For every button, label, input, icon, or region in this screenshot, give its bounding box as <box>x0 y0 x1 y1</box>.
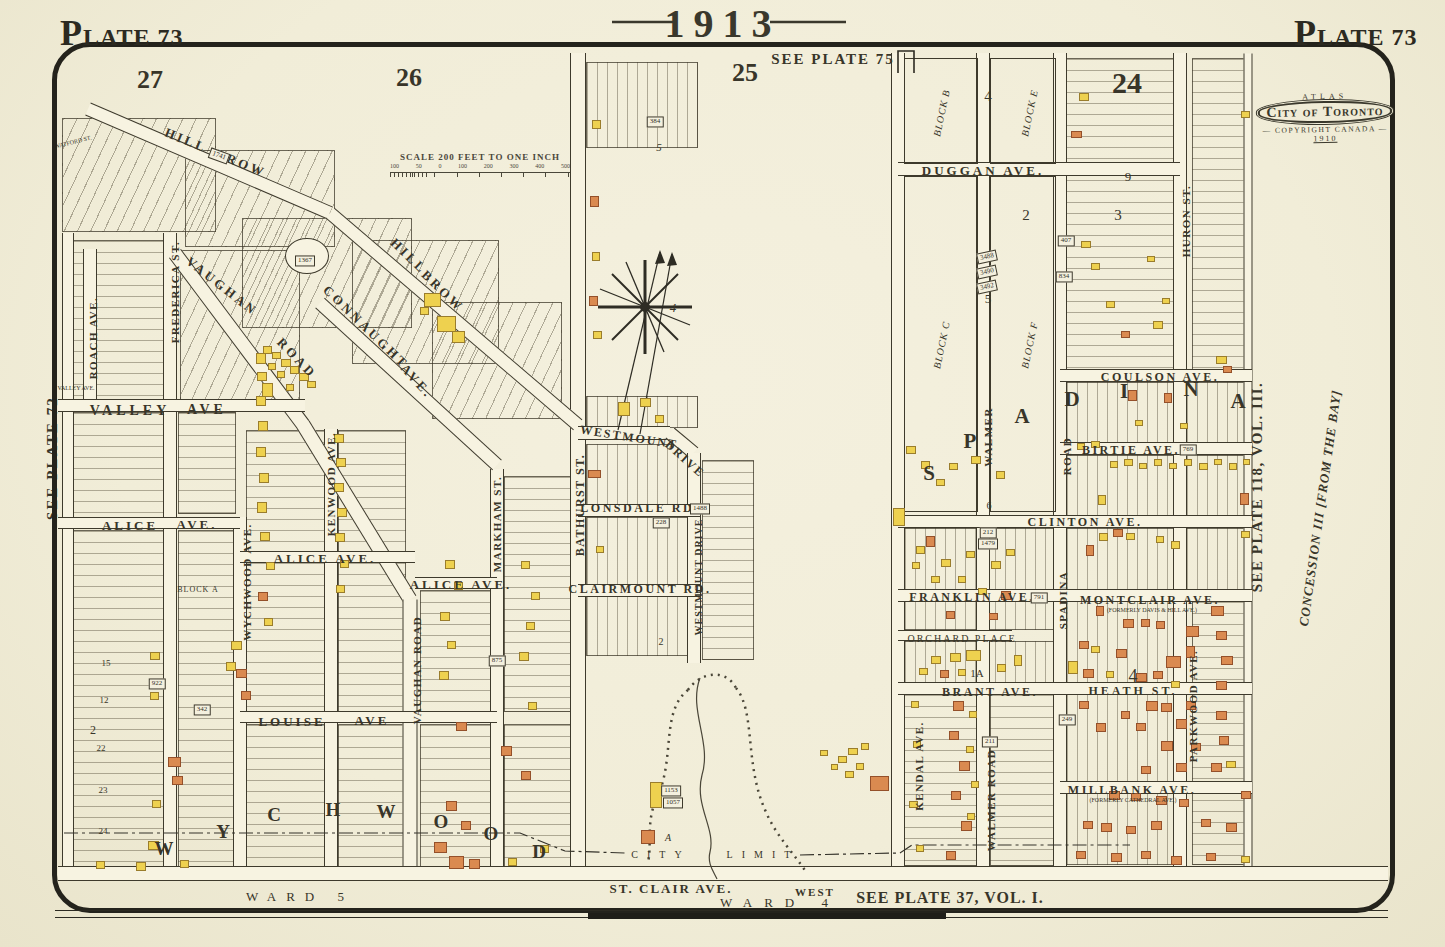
building-footprint <box>641 830 655 844</box>
map-label: P <box>964 431 977 452</box>
map-label: A <box>1230 391 1245 412</box>
map-label: 4 <box>670 301 677 314</box>
map-label: N <box>1183 379 1198 400</box>
building-footprint <box>1241 791 1251 799</box>
building-footprint <box>1216 711 1227 720</box>
building-footprint <box>236 669 247 678</box>
map-label: 2 <box>659 637 664 647</box>
building-footprint <box>1083 669 1094 678</box>
scale-tick-mark <box>545 173 546 177</box>
scale-tick-label: 500 <box>561 163 570 171</box>
map-label: BIRTIE AVE. <box>1082 444 1180 456</box>
building-footprint <box>958 576 966 583</box>
map-label: O <box>484 824 499 843</box>
atlas-map-page: { "header": { "year": "1913", "plate_lef… <box>0 0 1445 947</box>
reference-number-box: 922 <box>149 678 166 689</box>
map-label: 5 <box>656 142 662 153</box>
map-label: KENDAL AVE. <box>914 721 925 811</box>
building-footprint <box>258 421 268 431</box>
building-footprint <box>1101 823 1112 832</box>
building-footprint <box>951 791 961 800</box>
building-footprint <box>96 861 105 869</box>
building-footprint <box>588 470 601 478</box>
building-footprint <box>946 611 955 619</box>
map-label: ALICE <box>102 519 158 532</box>
scale-tick-mark <box>434 173 435 177</box>
map-label: BRANT AVE. <box>942 686 1038 698</box>
building-footprint <box>268 363 276 370</box>
block-outline <box>990 58 1056 164</box>
building-footprint <box>919 668 928 675</box>
building-footprint <box>941 559 951 567</box>
building-footprint <box>1126 533 1135 540</box>
reference-number-box: 769 <box>1180 444 1197 455</box>
building-footprint <box>912 562 920 569</box>
building-footprint <box>1199 463 1208 470</box>
street-corridor <box>62 233 74 873</box>
map-label: D <box>1064 389 1079 410</box>
scale-tick-mark <box>523 173 524 177</box>
lot-block <box>62 412 164 518</box>
building-footprint <box>946 851 956 860</box>
map-label: H <box>326 800 341 819</box>
building-footprint <box>526 622 535 630</box>
map-label: BLOCK A <box>177 586 218 594</box>
map-year-title: 1913 <box>0 0 1445 47</box>
building-footprint <box>1226 761 1236 768</box>
map-label: HEATH ST. <box>1088 685 1177 697</box>
building-footprint <box>1201 819 1211 827</box>
lot-block <box>586 596 690 656</box>
building-footprint <box>256 353 266 364</box>
map-label: VALLEY AVE. <box>57 385 94 391</box>
building-footprint <box>1110 461 1118 468</box>
lot-block <box>246 724 326 868</box>
building-footprint <box>336 585 345 593</box>
building-footprint <box>931 576 940 583</box>
map-label: HURON ST. <box>1181 185 1192 258</box>
lot-block <box>62 240 166 400</box>
bottom-ward-bar <box>588 913 946 919</box>
building-footprint <box>447 641 456 649</box>
building-footprint <box>445 560 455 569</box>
map-label: AVE. <box>176 518 217 531</box>
building-footprint <box>1113 529 1123 537</box>
map-label: WESTMOUNT DRIVE <box>694 519 704 636</box>
building-footprint <box>231 641 242 650</box>
scale-tick-label: 50 <box>416 163 422 171</box>
building-footprint <box>911 701 919 708</box>
map-label: FRANKLIN AVE. <box>909 591 1035 603</box>
map-label: PARKWOOD AVE. <box>1188 650 1199 763</box>
building-footprint <box>1146 701 1158 711</box>
building-footprint <box>1161 703 1172 712</box>
scale-hatch <box>390 173 428 177</box>
building-footprint <box>1223 366 1232 373</box>
building-footprint <box>1076 851 1086 859</box>
reference-number-box: 407 <box>1058 235 1075 246</box>
building-footprint <box>258 592 268 601</box>
building-footprint <box>1079 701 1089 709</box>
street-corridor <box>58 866 1388 881</box>
building-footprint <box>969 711 977 718</box>
building-footprint <box>936 479 945 486</box>
map-label: AVE <box>187 403 227 417</box>
map-label: 4 <box>1129 667 1138 685</box>
map-label: W <box>377 802 396 821</box>
building-footprint <box>1153 321 1163 329</box>
building-footprint <box>966 746 974 753</box>
scale-tick-label: 100 <box>458 163 467 171</box>
building-footprint <box>508 858 517 866</box>
building-footprint <box>168 757 181 767</box>
map-label: ROAD <box>1062 437 1073 475</box>
building-footprint <box>449 856 464 869</box>
building-footprint <box>456 722 467 731</box>
building-footprint <box>1141 619 1150 627</box>
building-footprint <box>931 656 941 664</box>
building-footprint <box>1139 463 1147 469</box>
building-footprint <box>997 664 1006 672</box>
lot-block <box>178 530 236 868</box>
building-footprint <box>593 331 602 339</box>
building-footprint <box>1081 241 1091 248</box>
building-footprint <box>971 456 981 464</box>
building-footprint <box>1216 356 1227 364</box>
building-footprint <box>1153 671 1163 679</box>
reference-number-box: 1488 <box>690 503 710 514</box>
building-footprint <box>618 402 630 416</box>
lot-block <box>178 412 236 514</box>
plate-number-right: Plate 73 <box>1294 12 1418 54</box>
building-footprint <box>1123 619 1134 628</box>
building-footprint <box>1098 495 1106 505</box>
building-footprint <box>1164 393 1172 403</box>
building-footprint <box>1151 821 1162 830</box>
map-label: SEE PLATE 75 <box>771 52 895 67</box>
building-footprint <box>519 652 529 661</box>
building-footprint <box>256 396 266 406</box>
building-footprint <box>1179 799 1189 807</box>
building-footprint <box>1214 459 1222 465</box>
scale-tick-mark <box>501 173 502 177</box>
building-footprint <box>906 446 916 454</box>
scale-tick-label: 300 <box>510 163 519 171</box>
building-footprint <box>640 398 651 407</box>
building-footprint <box>590 196 599 207</box>
building-footprint <box>180 860 189 868</box>
map-label: CITY <box>631 850 690 860</box>
building-footprint <box>439 671 449 680</box>
map-label: LOUISE <box>258 715 325 728</box>
building-footprint <box>1211 606 1224 616</box>
building-footprint <box>446 801 457 811</box>
reference-number-box: 342 <box>194 704 211 715</box>
map-label: AVE <box>355 714 390 727</box>
building-footprint <box>848 748 858 755</box>
building-footprint <box>1083 821 1093 829</box>
building-footprint <box>150 652 160 660</box>
map-label: DUGGAN AVE. <box>922 164 1044 177</box>
building-footprint <box>996 471 1005 479</box>
building-footprint <box>838 756 847 763</box>
building-footprint <box>1161 741 1173 751</box>
building-footprint <box>949 463 958 470</box>
building-footprint <box>1124 459 1133 466</box>
scale-bar: SCALE 200 FEET TO ONE INCH 1005001002003… <box>390 152 570 177</box>
lot-block <box>62 530 164 868</box>
building-footprint <box>1211 763 1222 772</box>
building-footprint <box>1216 681 1227 690</box>
map-label: CONCESSION III [FROM THE BAY] <box>1297 389 1343 627</box>
building-footprint <box>1186 626 1199 637</box>
map-label: ALICE AVE. <box>410 578 513 591</box>
reference-number-box: 212 <box>980 527 997 538</box>
building-footprint <box>893 508 905 526</box>
scale-tick-mark <box>457 173 458 177</box>
building-footprint <box>967 813 975 820</box>
street-corridor <box>891 53 905 873</box>
building-footprint <box>469 859 480 869</box>
building-footprint <box>1141 766 1151 774</box>
building-footprint <box>257 502 267 513</box>
building-footprint <box>172 776 183 785</box>
building-footprint <box>1106 301 1115 308</box>
building-footprint <box>260 532 270 541</box>
map-label: SEE PLATE 118, VOL. III. <box>1250 382 1265 593</box>
building-footprint <box>257 372 267 381</box>
map-label: 27 <box>137 67 163 93</box>
building-footprint <box>1126 826 1136 834</box>
map-label: 1A <box>970 668 983 679</box>
building-footprint <box>966 551 975 558</box>
map-label: LONSDALE RD. <box>580 502 699 514</box>
map-label: CLAIRMOUNT RD. <box>569 583 712 595</box>
map-label: MILLBANK AVE. <box>1068 784 1196 796</box>
building-footprint <box>1111 853 1122 862</box>
building-footprint <box>596 546 604 553</box>
building-footprint <box>1116 649 1127 658</box>
map-label: KENWOOD AVE. <box>326 432 337 537</box>
map-label: ALICE AVE. <box>274 552 377 565</box>
scale-title: SCALE 200 FEET TO ONE INCH <box>390 152 570 162</box>
building-footprint <box>437 316 456 332</box>
lot-block <box>420 724 492 868</box>
building-footprint <box>262 383 273 397</box>
building-footprint <box>1241 111 1250 118</box>
map-label: 2 <box>90 724 96 736</box>
scale-tick-label: 200 <box>484 163 493 171</box>
map-label: 2 <box>1022 208 1030 223</box>
building-footprint <box>592 120 601 129</box>
reference-number-box: 791 <box>1031 592 1048 603</box>
map-label: 25 <box>732 60 758 86</box>
building-footprint <box>264 618 273 626</box>
building-footprint <box>1154 459 1162 466</box>
scale-tick-mark <box>568 173 569 177</box>
building-footprint <box>1156 621 1165 629</box>
building-footprint <box>256 447 266 457</box>
map-label: VALLEY <box>90 404 171 418</box>
map-label: 5 <box>985 292 992 305</box>
map-label: WALMER ROAD <box>986 749 997 851</box>
building-footprint <box>1096 723 1106 732</box>
building-footprint <box>531 592 540 600</box>
map-label: ORCHARD PLACE <box>907 634 1016 644</box>
map-label: LIMIT <box>727 850 800 860</box>
scale-tick-mark <box>479 173 480 177</box>
map-label: WYCHWOOD AVE. <box>242 523 253 641</box>
reference-number-box: 1153 <box>661 785 681 796</box>
building-footprint <box>150 692 159 700</box>
map-label: 23 <box>99 786 108 795</box>
building-footprint <box>1171 856 1182 865</box>
building-footprint <box>959 761 970 771</box>
building-footprint <box>1184 459 1192 466</box>
scale-tick-mark <box>412 173 413 177</box>
building-footprint <box>307 381 316 388</box>
map-label: C <box>267 805 281 824</box>
building-footprint <box>272 352 281 359</box>
map-label: 24 <box>1112 68 1142 98</box>
building-footprint <box>521 561 530 569</box>
bottom-rule-1 <box>55 910 1388 911</box>
reference-number-box: 228 <box>653 517 670 528</box>
map-label: I <box>1120 381 1128 402</box>
atlas-stamp: ATLAS City of Toronto COPYRIGHT CANADA 1… <box>1256 91 1395 144</box>
building-footprint <box>1096 606 1104 616</box>
building-footprint <box>950 653 961 662</box>
map-label: WARD 5 <box>246 890 354 903</box>
lot-block <box>246 562 326 712</box>
reference-number-box: 875 <box>489 655 506 666</box>
building-footprint <box>1176 719 1187 729</box>
building-footprint <box>1006 549 1015 556</box>
building-footprint <box>1166 656 1181 668</box>
building-footprint <box>949 731 959 740</box>
building-footprint <box>1219 736 1229 745</box>
building-footprint <box>1128 390 1137 401</box>
scale-tick-mark <box>390 173 391 177</box>
lot-block <box>702 460 754 660</box>
map-label: A <box>1014 406 1029 427</box>
building-footprint <box>991 561 1001 569</box>
building-footprint <box>1147 256 1155 262</box>
map-label: ST. CLAIR AVE. <box>610 882 733 895</box>
building-footprint <box>521 771 531 780</box>
map-label: 26 <box>396 65 422 91</box>
building-footprint <box>1099 533 1108 541</box>
reference-number-box: 1479 <box>978 538 998 549</box>
building-footprint <box>1206 853 1216 861</box>
map-label: W <box>155 839 174 858</box>
building-footprint <box>971 781 979 788</box>
building-footprint <box>655 415 664 423</box>
map-label: SEE PLATE 37, VOL. I. <box>856 890 1044 906</box>
map-label: COULSON AVE. <box>1101 371 1219 383</box>
building-footprint <box>241 691 251 700</box>
building-footprint <box>1014 655 1022 666</box>
scale-tick-labels: 100500100200300400500 <box>390 163 570 171</box>
building-footprint <box>961 821 972 831</box>
map-label: A <box>665 833 671 843</box>
building-footprint <box>870 776 889 791</box>
scale-tick-label: 0 <box>438 163 441 171</box>
map-label: O <box>434 812 449 831</box>
reference-number-box: 1057 <box>663 797 683 808</box>
map-label: 15 <box>102 659 111 668</box>
stamp-city-of-toronto-text: City of Toronto <box>1258 100 1392 124</box>
building-footprint <box>1091 646 1100 653</box>
building-footprint <box>592 252 600 261</box>
building-footprint <box>335 533 345 542</box>
building-footprint <box>861 743 869 750</box>
building-footprint <box>958 669 966 676</box>
map-label: 24 <box>99 827 108 836</box>
building-footprint <box>926 536 935 547</box>
building-footprint <box>1086 545 1094 556</box>
building-footprint <box>940 670 949 678</box>
map-label: WARD 4 <box>720 896 840 909</box>
building-footprint <box>1136 723 1146 731</box>
reference-number-box: 249 <box>1059 714 1076 725</box>
reference-number-box: 384 <box>647 116 664 127</box>
map-label: FREDERICA ST. <box>170 241 181 343</box>
building-footprint <box>259 473 269 483</box>
map-canvas: 1913 Plate 73 Plate 73 ATLAS City of Tor… <box>0 0 1445 947</box>
map-label: MONTCLAIR AVE. <box>1080 594 1220 606</box>
map-label: (FORMERLY CATHEDRAL AVE.) <box>1089 797 1176 803</box>
building-footprint <box>452 331 465 343</box>
building-footprint <box>1216 631 1227 640</box>
map-label: 3 <box>1114 208 1122 223</box>
building-footprint <box>1229 463 1237 470</box>
building-footprint <box>337 508 347 517</box>
building-footprint <box>1221 656 1233 665</box>
building-footprint <box>286 384 294 391</box>
building-footprint <box>1180 423 1188 429</box>
map-label: D <box>532 842 546 861</box>
building-footprint <box>277 371 285 378</box>
building-footprint <box>966 650 981 661</box>
building-footprint <box>953 701 964 711</box>
building-footprint <box>420 307 429 315</box>
plate-number-left: Plate 73 <box>60 12 184 54</box>
scale-tick-label: 100 <box>390 163 399 171</box>
building-footprint <box>831 764 838 770</box>
scale-rule <box>390 172 570 177</box>
building-footprint <box>440 612 450 621</box>
building-footprint <box>1091 263 1100 270</box>
building-footprint <box>461 821 471 830</box>
building-footprint <box>501 746 512 756</box>
lot-block <box>420 590 492 712</box>
building-footprint <box>1121 331 1130 338</box>
building-footprint <box>1121 711 1130 719</box>
building-footprint <box>152 800 161 808</box>
building-footprint <box>845 771 854 778</box>
map-label: 9 <box>1125 170 1132 183</box>
building-footprint <box>528 702 537 710</box>
map-label: VAUGHAN ROAD <box>412 616 423 725</box>
map-label: CLINTON AVE. <box>1028 516 1143 528</box>
reference-number-box: 834 <box>1056 271 1073 282</box>
building-footprint <box>1079 93 1089 101</box>
lot-block <box>1066 382 1250 443</box>
building-footprint <box>989 613 998 620</box>
building-footprint <box>1162 298 1170 304</box>
building-footprint <box>589 296 598 306</box>
